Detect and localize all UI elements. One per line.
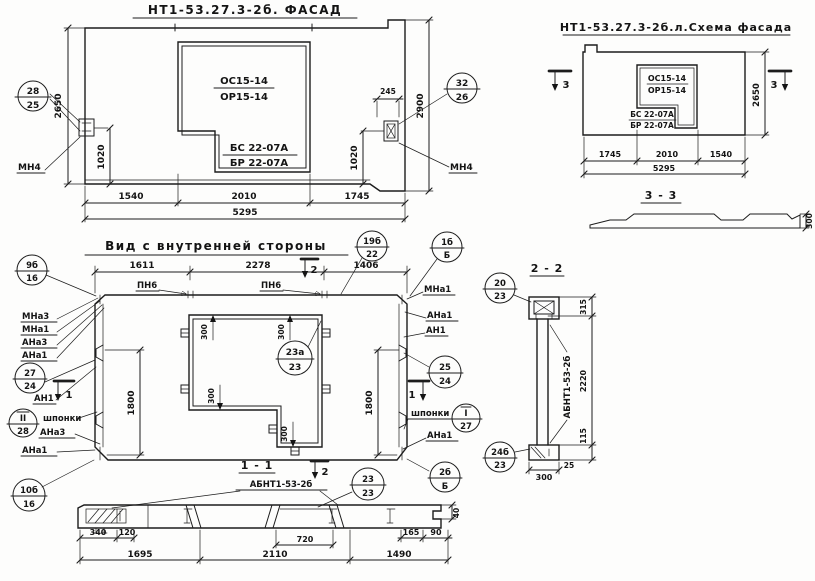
fixture-label-right: МН4	[399, 143, 477, 173]
svg-text:300: 300	[200, 324, 209, 340]
window-mark-bottom: ОР15-14	[220, 92, 268, 103]
svg-text:10б: 10б	[20, 485, 38, 496]
svg-text:1490: 1490	[386, 550, 411, 560]
lintel-mark-top: БС 22-07А	[230, 143, 288, 154]
section-mark-1-right: 1	[409, 381, 429, 401]
svg-text:ПН6: ПН6	[137, 281, 157, 291]
svg-text:26: 26	[456, 93, 469, 103]
schema-dim-2010: 2010	[656, 150, 679, 159]
svg-text:24: 24	[24, 382, 36, 392]
svg-text:МН4: МН4	[450, 163, 473, 173]
svg-text:Б: Б	[444, 251, 450, 261]
facade-callout-left: 28 25	[15, 81, 80, 131]
svg-text:1: 1	[66, 390, 73, 401]
inner-title: Вид с внутренней стороны	[105, 239, 327, 253]
section-1-1-dims: 40 340 120 165 90 720 1695 2110 1490	[77, 502, 461, 564]
svg-text:340: 340	[90, 528, 107, 537]
dim-1745: 1745	[344, 192, 369, 202]
section-3-3-profile	[590, 214, 800, 228]
svg-text:1б: 1б	[441, 237, 453, 248]
svg-text:40: 40	[452, 508, 461, 518]
lintel-mark-bottom: БР 22-07А	[230, 158, 288, 169]
svg-text:25: 25	[439, 363, 451, 373]
svg-text:16: 16	[26, 274, 38, 284]
svg-text:I: I	[464, 409, 467, 419]
svg-text:1: 1	[409, 390, 416, 401]
svg-text:2б: 2б	[439, 467, 451, 478]
svg-text:23: 23	[494, 461, 506, 471]
section-mark-2-bottom: 2	[311, 461, 329, 479]
svg-text:шпонки: шпонки	[43, 414, 81, 424]
svg-text:II: II	[20, 414, 26, 424]
dim-2278: 2278	[245, 261, 270, 271]
section-1-1: 1 - 1 АБНТ1-53-2б 23 23 40	[77, 459, 461, 564]
svg-text:АНа1: АНа1	[22, 446, 47, 456]
section-1-1-label: АБНТ1-53-2б	[250, 479, 313, 490]
svg-text:Б: Б	[442, 482, 448, 492]
svg-text:1800: 1800	[365, 390, 375, 415]
svg-text:28: 28	[17, 427, 29, 437]
svg-text:АН1: АН1	[426, 326, 446, 336]
svg-text:27: 27	[460, 422, 472, 432]
svg-text:2: 2	[311, 265, 318, 276]
svg-text:АНа3: АНа3	[22, 338, 47, 348]
window-offset-dims: 300 300 300 300	[200, 315, 296, 447]
svg-text:120: 120	[119, 528, 136, 537]
svg-text:шпонки: шпонки	[411, 409, 449, 419]
right-fixture	[384, 121, 398, 141]
svg-text:19б: 19б	[363, 236, 381, 247]
section-2-2-title: 2 - 2	[531, 262, 564, 275]
svg-text:АН1: АН1	[34, 394, 54, 404]
schema-lintel-bot: БР 22-07А	[630, 121, 674, 130]
svg-text:23: 23	[289, 363, 302, 373]
svg-text:24: 24	[439, 377, 451, 387]
svg-text:АНа3: АНа3	[40, 428, 65, 438]
schema-dim-1540: 1540	[710, 150, 733, 159]
svg-text:27: 27	[24, 369, 36, 379]
dim-2010: 2010	[231, 192, 256, 202]
svg-text:115: 115	[579, 428, 588, 444]
svg-text:3: 3	[563, 80, 570, 91]
svg-text:23: 23	[494, 292, 506, 302]
section-2-2-label: АБНТ1-53-2б	[562, 356, 573, 419]
svg-text:1695: 1695	[127, 550, 152, 560]
svg-text:2220: 2220	[579, 369, 588, 392]
panel-drawing-canvas: НТ1-53.27.3-2б. ФАСАД ОС15-14 ОР15-14 БС…	[0, 0, 815, 581]
schema-lintel-top: БС 22-07А	[630, 110, 674, 119]
section-1-1-title: 1 - 1	[241, 459, 274, 472]
section-3-3-title: 3 - 3	[645, 189, 678, 202]
svg-text:2110: 2110	[262, 550, 287, 560]
section-mark-2-top: 2	[301, 259, 318, 278]
schema-window-bot: ОР15-14	[648, 86, 687, 95]
svg-text:23: 23	[362, 475, 374, 485]
inner-vertical-dims: 1800 1800	[105, 347, 399, 458]
svg-text:1800: 1800	[127, 390, 137, 415]
schema-dim-2650: 2650	[752, 83, 762, 107]
svg-text:ПН6: ПН6	[261, 281, 281, 291]
drawing-sheet: НТ1-53.27.3-2б. ФАСАД ОС15-14 ОР15-14 БС…	[0, 0, 815, 581]
schema-dim-1745: 1745	[599, 150, 622, 159]
svg-text:АНа1: АНа1	[22, 351, 47, 361]
facade-dimensions: 2650 2900 1020 1020 245 1540 2010 1745	[54, 17, 433, 222]
section-mark-3-right: 3	[769, 71, 791, 91]
section-mark-1-left: 1	[54, 381, 74, 401]
dim-5295: 5295	[232, 208, 257, 218]
facade-callout-right: 32 26	[399, 73, 480, 124]
inner-left-labels: 9б 16 МНа3 МНа1 АНа3 АНа1 27 24 АН1 II 2…	[7, 255, 104, 511]
svg-text:300: 300	[280, 426, 289, 442]
svg-text:300: 300	[277, 324, 286, 340]
schema-window-top: ОС15-14	[648, 74, 687, 83]
svg-text:90: 90	[430, 528, 442, 537]
svg-text:22: 22	[366, 250, 378, 260]
svg-text:24б: 24б	[491, 447, 509, 458]
schema-title: НТ1-53.27.3-2б.л.Схема фасада	[560, 21, 792, 34]
dim-245: 245	[380, 87, 396, 96]
svg-text:2: 2	[322, 467, 329, 478]
dim-1020-left: 1020	[97, 144, 107, 169]
schema-dim-5295: 5295	[653, 164, 676, 173]
left-edge-keys	[96, 345, 103, 428]
schema-view: НТ1-53.27.3-2б.л.Схема фасада ОС15-14 ОР…	[549, 21, 814, 231]
svg-text:МНа1: МНа1	[22, 325, 49, 335]
svg-text:20: 20	[494, 279, 506, 289]
facade-view: НТ1-53.27.3-2б. ФАСАД ОС15-14 ОР15-14 БС…	[15, 3, 480, 222]
svg-text:32: 32	[456, 79, 469, 89]
callout-24b-23: 24б 23	[483, 442, 530, 472]
svg-text:АНа1: АНа1	[427, 311, 452, 321]
left-fixture	[79, 119, 94, 136]
svg-text:720: 720	[297, 535, 314, 544]
svg-text:23: 23	[362, 489, 374, 499]
dim-2900: 2900	[416, 93, 426, 118]
section-3-3-dim-300: 300	[805, 213, 814, 229]
svg-text:МНа3: МНа3	[22, 312, 49, 322]
svg-text:23а: 23а	[286, 348, 305, 358]
window-anchor-tabs	[181, 329, 330, 455]
svg-text:16: 16	[23, 500, 35, 510]
svg-text:28: 28	[27, 87, 40, 97]
svg-text:300: 300	[207, 388, 216, 404]
callout-20-23: 20 23	[483, 273, 531, 303]
fixture-label-left: МН4	[17, 137, 80, 173]
svg-text:300: 300	[536, 473, 553, 482]
svg-text:АНа1: АНа1	[427, 431, 452, 441]
dim-1020-right: 1020	[350, 145, 360, 170]
svg-text:МН4: МН4	[18, 163, 41, 173]
svg-text:МНа1: МНа1	[424, 285, 451, 295]
svg-text:25: 25	[564, 461, 574, 470]
section-2-2: 2 - 2 АБНТ1-53-2б 315 2220 115 25 300	[483, 262, 596, 482]
section-3-3: 3 - 3 300	[590, 189, 814, 231]
section-mark-3-left: 3	[549, 71, 571, 91]
svg-text:165: 165	[403, 528, 420, 537]
dim-1540: 1540	[118, 192, 143, 202]
svg-text:315: 315	[579, 299, 588, 315]
inner-panel-outline	[95, 295, 407, 460]
right-edge-keys	[399, 345, 406, 428]
svg-text:25: 25	[27, 101, 40, 111]
window-mark-top: ОС15-14	[220, 76, 268, 87]
section-2-2-body	[529, 297, 559, 460]
dim-1611: 1611	[129, 261, 154, 271]
svg-text:9б: 9б	[26, 260, 38, 271]
svg-text:3: 3	[771, 80, 778, 91]
facade-title: НТ1-53.27.3-2б. ФАСАД	[148, 3, 342, 17]
